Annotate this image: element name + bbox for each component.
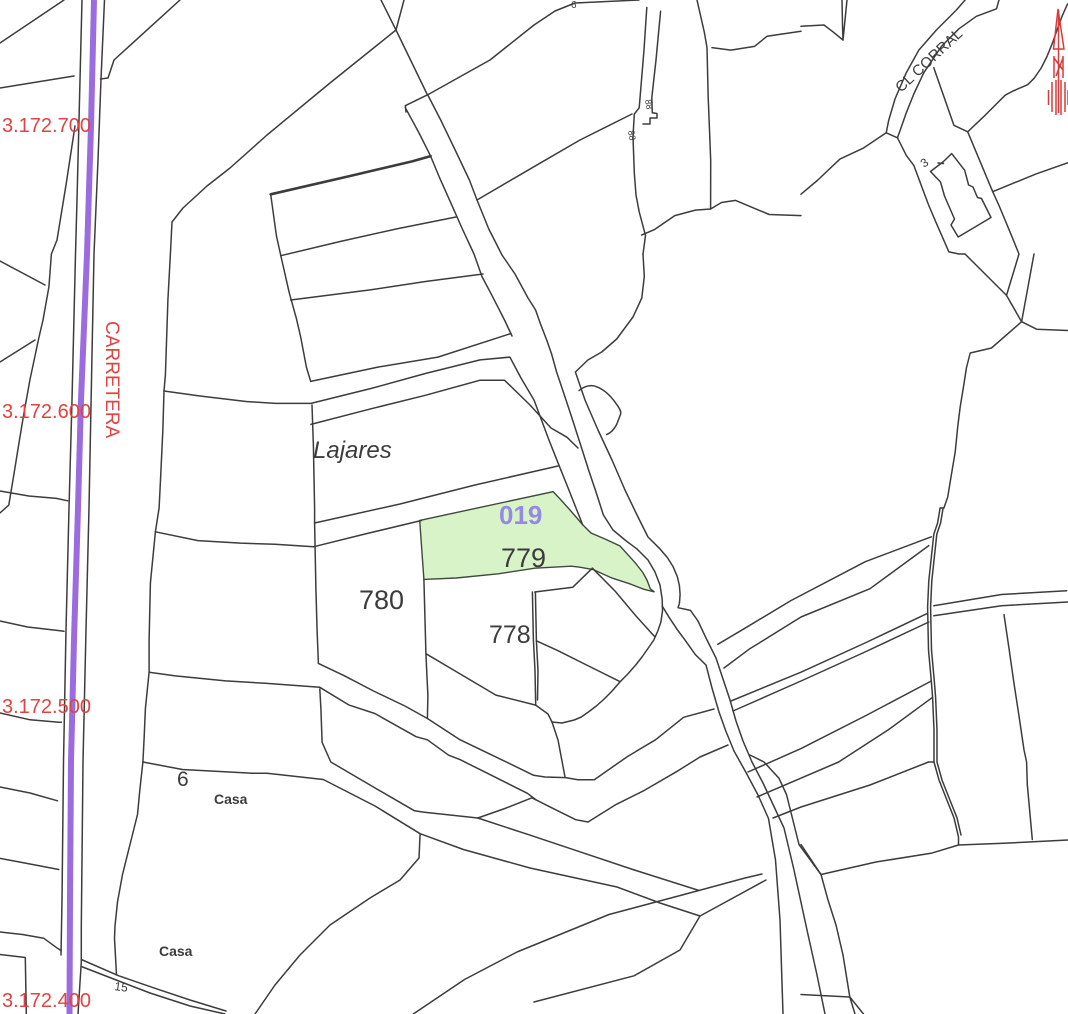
svg-text:780: 780: [359, 585, 404, 615]
svg-text:3.172.500: 3.172.500: [2, 696, 91, 718]
svg-text:3.172.400: 3.172.400: [2, 990, 91, 1012]
svg-text:Casa: Casa: [214, 791, 248, 807]
svg-text:88: 88: [626, 130, 638, 142]
svg-text:019: 019: [499, 500, 542, 530]
svg-text:778: 778: [489, 621, 531, 649]
svg-text:3.172.700: 3.172.700: [2, 115, 91, 137]
svg-text:6: 6: [177, 768, 189, 791]
svg-text:6: 6: [571, 0, 577, 11]
svg-text:779: 779: [501, 543, 546, 573]
svg-text:CARRETERA: CARRETERA: [101, 321, 122, 439]
svg-text:3.172.600: 3.172.600: [2, 401, 91, 423]
svg-text:88: 88: [643, 99, 655, 111]
svg-text:Casa: Casa: [159, 943, 193, 959]
svg-text:15: 15: [114, 979, 129, 995]
svg-text:Lajares: Lajares: [313, 437, 392, 464]
